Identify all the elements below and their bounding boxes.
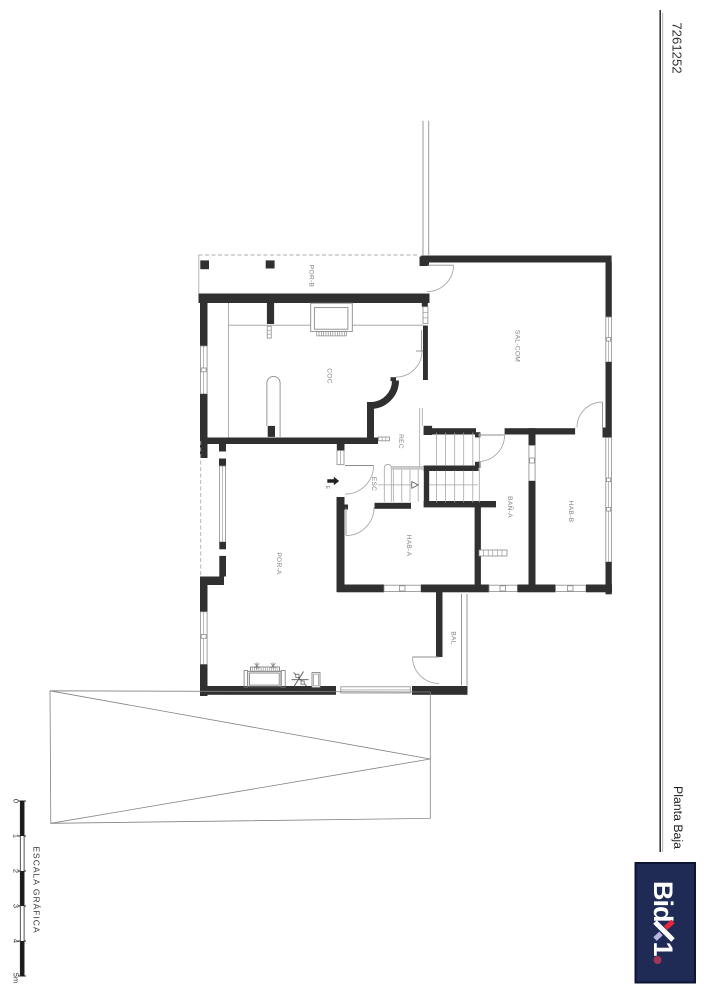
svg-text:POR-A: POR-A [275, 552, 282, 575]
svg-text:2: 2 [12, 869, 21, 873]
svg-text:HAB-B: HAB-B [567, 501, 574, 523]
svg-text:SAL-COM: SAL-COM [514, 330, 521, 362]
svg-text:1: 1 [648, 942, 678, 957]
svg-text:ESC: ESC [370, 477, 377, 491]
svg-text:HAB-A: HAB-A [405, 535, 412, 557]
svg-text:ESCALA GRÁFICA: ESCALA GRÁFICA [32, 846, 42, 933]
svg-text:7261252: 7261252 [670, 22, 685, 73]
svg-text:BAÑ-A: BAÑ-A [506, 496, 515, 518]
svg-text:E: E [324, 486, 330, 490]
svg-text:5m: 5m [12, 973, 21, 983]
svg-text:1: 1 [12, 834, 21, 838]
svg-text:BAL: BAL [450, 631, 457, 644]
svg-text:REC: REC [397, 434, 404, 449]
svg-text:POR-B: POR-B [308, 265, 315, 288]
svg-text:COC: COC [326, 368, 333, 384]
svg-text:0: 0 [12, 799, 21, 803]
svg-text:4: 4 [12, 939, 21, 943]
svg-text:Bid: Bid [648, 881, 678, 922]
svg-text:Planta Baja: Planta Baja [671, 786, 685, 849]
svg-text:3: 3 [12, 904, 21, 908]
